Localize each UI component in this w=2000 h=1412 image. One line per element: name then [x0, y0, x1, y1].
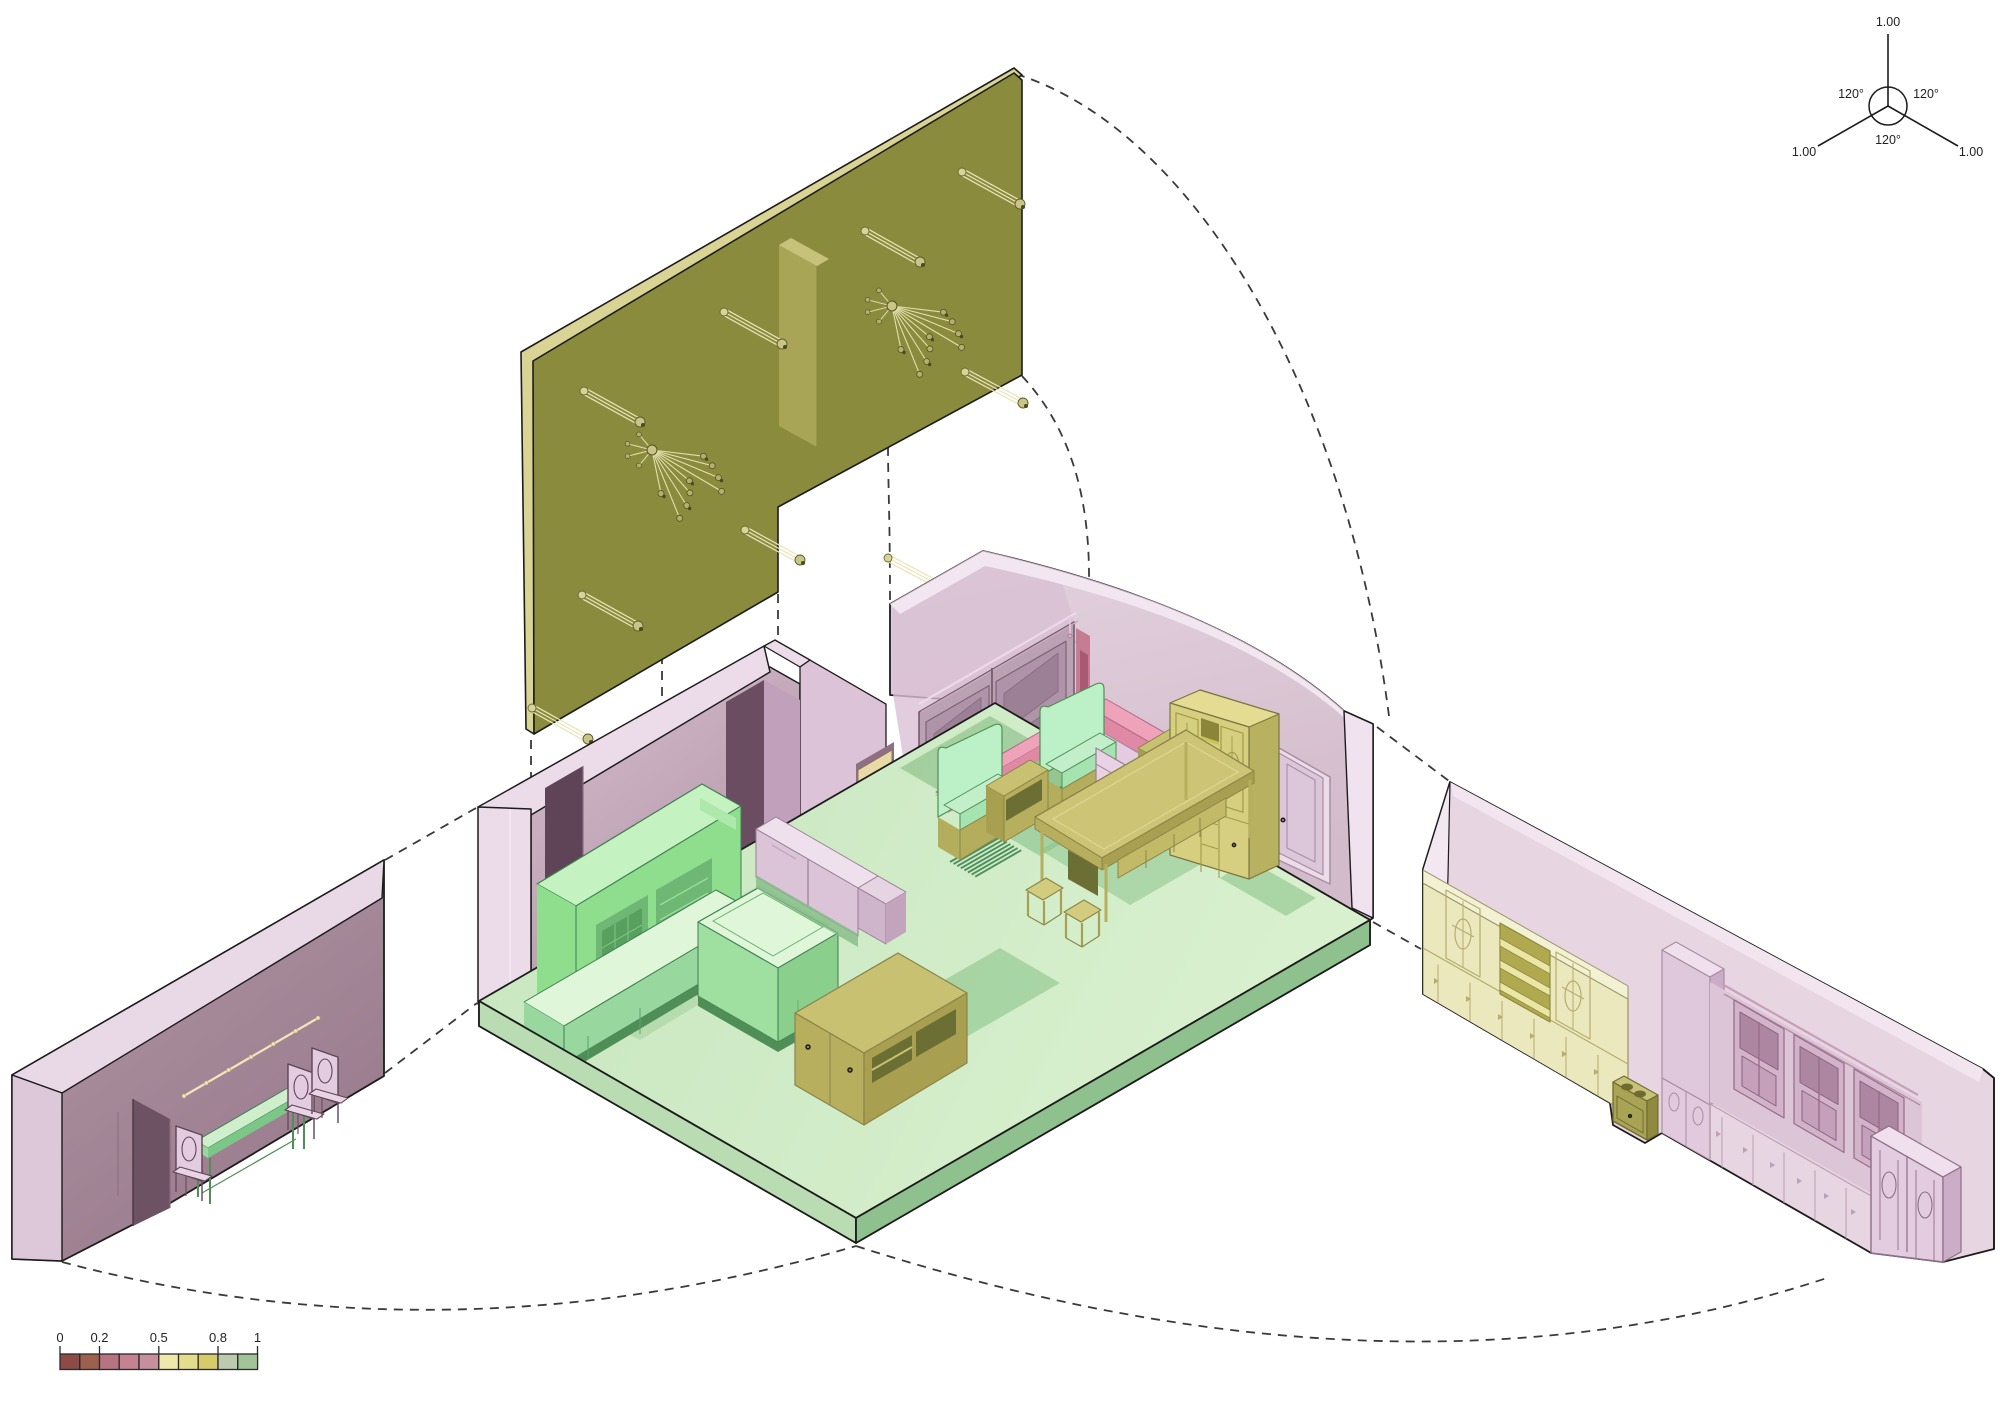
- svg-text:1: 1: [254, 1330, 261, 1345]
- svg-text:1.00: 1.00: [1876, 15, 1900, 29]
- svg-text:120°: 120°: [1875, 133, 1901, 147]
- svg-text:1.00: 1.00: [1959, 145, 1983, 159]
- svg-text:0.5: 0.5: [150, 1330, 168, 1345]
- svg-text:120°: 120°: [1838, 87, 1864, 101]
- svg-text:0.2: 0.2: [90, 1330, 108, 1345]
- svg-text:1.00: 1.00: [1792, 145, 1816, 159]
- svg-text:0: 0: [56, 1330, 63, 1345]
- svg-text:120°: 120°: [1913, 87, 1939, 101]
- svg-text:0.8: 0.8: [209, 1330, 227, 1345]
